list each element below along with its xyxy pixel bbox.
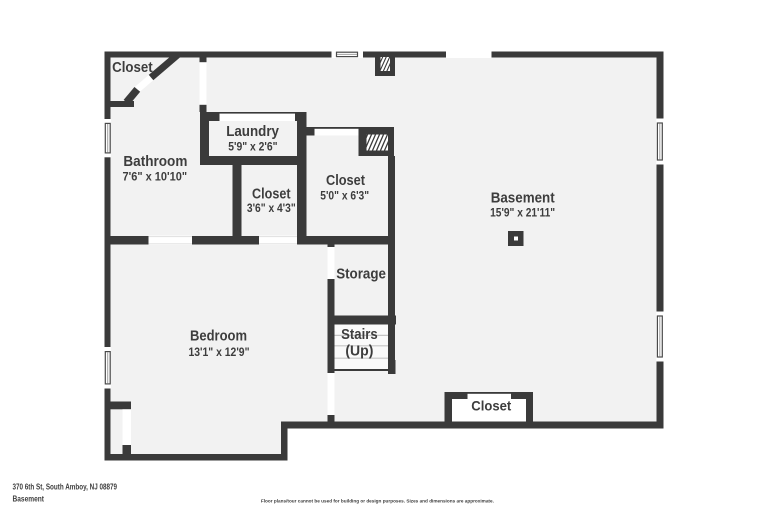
svg-text:Bathroom: Bathroom xyxy=(123,154,187,170)
svg-text:Basement: Basement xyxy=(491,190,555,206)
svg-text:3'6" x 4'3": 3'6" x 4'3" xyxy=(247,203,296,215)
svg-text:13'1" x 12'9": 13'1" x 12'9" xyxy=(189,347,250,359)
svg-text:Closet: Closet xyxy=(252,187,291,203)
svg-text:Basement: Basement xyxy=(13,494,45,503)
svg-text:Closet: Closet xyxy=(471,399,511,414)
svg-text:(Up): (Up) xyxy=(345,344,373,360)
svg-text:5'0" x 6'3": 5'0" x 6'3" xyxy=(320,191,369,203)
svg-text:370 6th St, South Amboy, NJ 08: 370 6th St, South Amboy, NJ 08879 xyxy=(13,483,118,492)
svg-text:Floor plans/tour cannot be use: Floor plans/tour cannot be used for buil… xyxy=(261,499,494,505)
svg-text:Closet: Closet xyxy=(112,60,153,76)
svg-text:Laundry: Laundry xyxy=(226,124,279,140)
svg-text:Bedroom: Bedroom xyxy=(190,329,247,345)
svg-text:7'6" x 10'10": 7'6" x 10'10" xyxy=(123,171,188,183)
svg-text:Closet: Closet xyxy=(326,173,365,189)
svg-text:Stairs: Stairs xyxy=(341,327,378,343)
svg-text:15'9" x 21'11": 15'9" x 21'11" xyxy=(490,207,555,219)
svg-text:Storage: Storage xyxy=(336,266,386,282)
svg-text:5'9" x 2'6": 5'9" x 2'6" xyxy=(228,141,277,153)
